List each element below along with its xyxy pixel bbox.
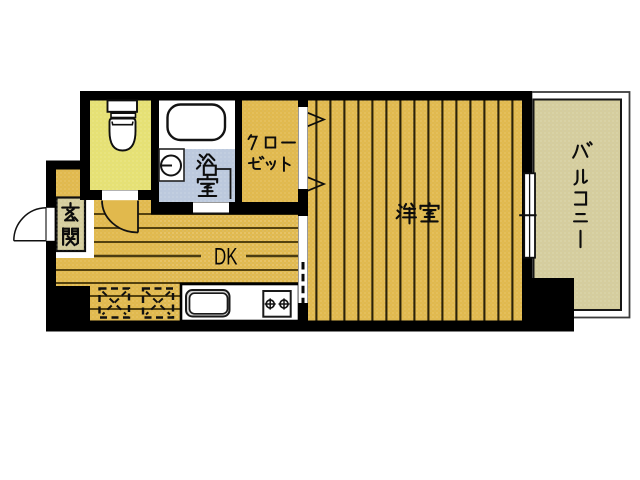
svg-text:DK: DK: [214, 244, 238, 271]
